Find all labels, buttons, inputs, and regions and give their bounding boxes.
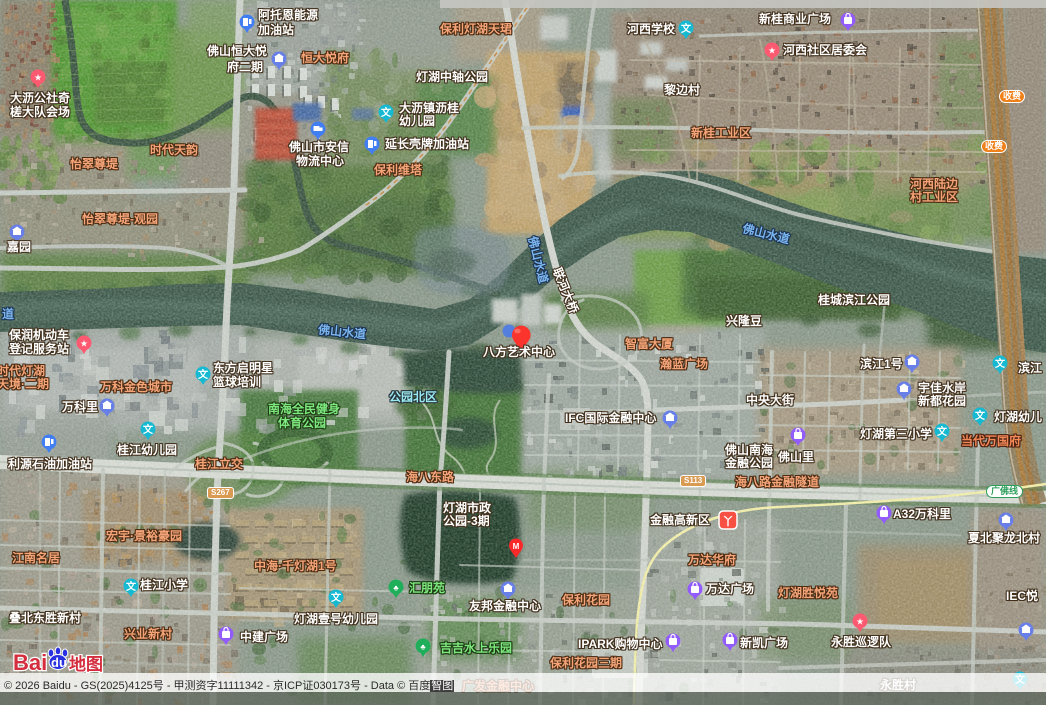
svg-text:文: 文 xyxy=(331,591,342,604)
svg-text:文: 文 xyxy=(198,368,209,381)
svg-text:Bai: Bai xyxy=(13,650,47,675)
svg-text:文: 文 xyxy=(937,425,948,438)
svg-text:M: M xyxy=(513,542,520,551)
svg-text:文: 文 xyxy=(681,22,692,35)
svg-text:文: 文 xyxy=(126,580,137,593)
svg-text:地图: 地图 xyxy=(69,654,103,674)
svg-text:文: 文 xyxy=(381,106,392,119)
svg-text:♣: ♣ xyxy=(393,584,399,593)
svg-text:文: 文 xyxy=(995,357,1006,370)
svg-text:♣: ♣ xyxy=(420,643,426,652)
svg-text:★: ★ xyxy=(34,73,42,83)
svg-text:丫: 丫 xyxy=(723,515,734,528)
svg-text:★: ★ xyxy=(768,46,776,56)
svg-text:文: 文 xyxy=(975,409,986,422)
svg-text:du: du xyxy=(51,655,67,670)
svg-text:★: ★ xyxy=(80,339,88,349)
svg-text:文: 文 xyxy=(143,423,154,436)
svg-text:★: ★ xyxy=(856,617,864,627)
